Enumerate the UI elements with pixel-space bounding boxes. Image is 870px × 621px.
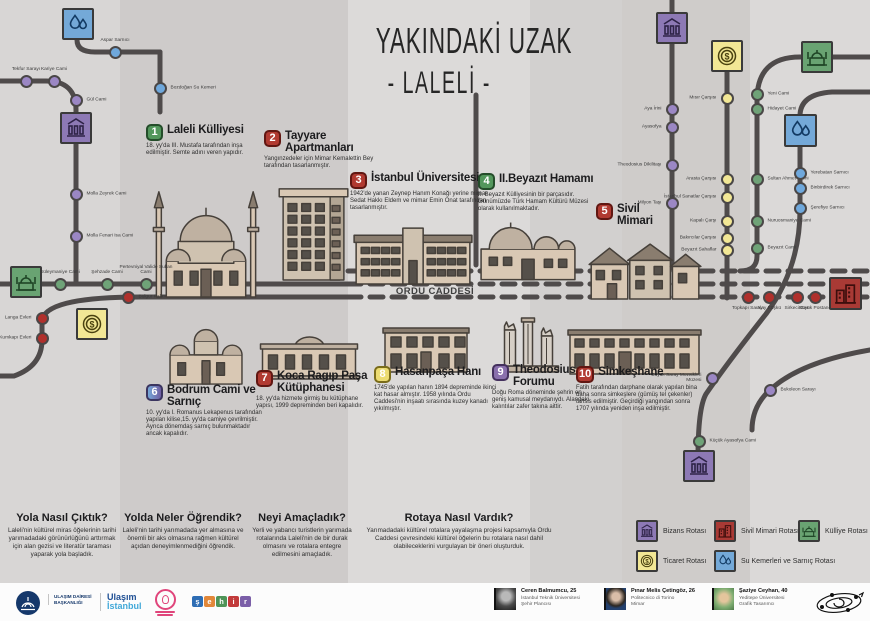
road-ordu-caddesi: ORDU CADDESİ — [366, 286, 504, 297]
person-name: Ceren Balmumcu, 25 — [521, 588, 580, 594]
legend-item-kulliye: Külliye Rotası — [798, 520, 868, 542]
person-name: Şaziye Ceyhan, 40 — [739, 588, 788, 594]
map-station: Yeni Cami — [751, 88, 764, 101]
illustration-church — [160, 316, 252, 386]
station-dot — [791, 291, 804, 304]
legend-label: Bizans Rotası — [663, 528, 706, 535]
map-station: Beyazıt Sahaflar — [721, 244, 734, 257]
poi-number-badge: 10 — [576, 366, 594, 383]
station-dot — [794, 202, 807, 215]
station-dot — [751, 173, 764, 186]
ibb-emblem-icon — [16, 591, 40, 615]
station-label: Bakırcılar Çarşısı — [661, 235, 717, 240]
illustration-hamam — [477, 210, 579, 282]
question-col-4: Rotaya Nasıl Vardık? Yarımadadaki kültür… — [360, 512, 558, 551]
station-label: Binbirdirek Sarnıcı — [811, 185, 867, 190]
map-station: Sultan Ahmet Cami — [751, 173, 764, 186]
poi-number-badge: 9 — [492, 364, 509, 381]
station-label: Süleymaniye Cami — [33, 270, 87, 275]
station-label: Aya İrini — [606, 106, 662, 111]
credit-person-3: Şaziye Ceyhan, 40 Yeditepe Üniversitesi … — [712, 588, 788, 610]
station-dot — [751, 242, 764, 255]
legend-item-water: Su Kemerleri ve Sarnıç Rotası — [714, 550, 835, 572]
station-dot — [809, 291, 822, 304]
station-dot — [751, 215, 764, 228]
person-photo — [604, 588, 626, 610]
question-col-2: Yolda Neler Öğrendik? Laleli'nin tarihi … — [122, 512, 244, 551]
person-photo — [712, 588, 734, 610]
poi-title: Sivil Mimari — [617, 203, 666, 227]
station-dot — [742, 291, 755, 304]
station-dot — [794, 167, 807, 180]
poi-description: Fatih tarafından darphane olarak yapılan… — [576, 385, 704, 413]
station-label: Langa Evleri — [0, 315, 32, 320]
pink-logo-icon — [155, 589, 176, 610]
poi-description: 18. yy'da III. Mustafa tarafından inşa e… — [146, 143, 264, 157]
bizans-route-icon — [60, 112, 92, 144]
person-school: Yeditepe Üniversitesi — [739, 596, 788, 601]
map-station: İstanbul Sanatlar Çarşısı — [721, 191, 734, 204]
station-label: Kapalı Çarşı — [661, 218, 717, 223]
station-label: Bozdoğan Su Kemeri — [171, 85, 227, 90]
wordmark-letter-tile: e — [204, 596, 215, 607]
map-station: Sirkeci Garı — [791, 291, 804, 304]
map-station: Mısır Çarşısı — [721, 92, 734, 105]
map-station: Molla Fenari Isa Cami — [70, 230, 83, 243]
map-station: Nuruosmaniye Cami — [751, 215, 764, 228]
ulasim-istanbul-logo: Ulaşım İstanbul — [100, 593, 142, 611]
person-school: Politecnico di Torino — [631, 596, 695, 601]
poi-description: 1942'de yanan Zeynep Hanım Konağı yerine… — [350, 191, 492, 212]
wordmark-letter-tile: i — [228, 596, 239, 607]
station-dot — [751, 103, 764, 116]
illustration-mosque — [146, 166, 266, 300]
ticaret-route-icon: $ — [636, 550, 658, 572]
poi-description: Yangınzedeler için Mimar Kemalettin Bey … — [264, 156, 394, 170]
map-station: Kariye Cami — [48, 75, 61, 88]
bizans-route-icon — [636, 520, 658, 542]
credit-person-2: Pınar Melis Çetingöz, 26 Politecnico di … — [604, 588, 695, 610]
station-dot — [36, 312, 49, 325]
credit-person-1: Ceren Balmumcu, 25 İstanbul Teknik Ünive… — [494, 588, 580, 610]
pink-logo-text — [155, 611, 176, 616]
station-label: Arasta Çarşısı — [661, 176, 717, 181]
ulasim-dairesi-logo: ULAŞIM DAİRESİ BAŞKANLIĞI — [48, 594, 94, 605]
poi-number-badge: 2 — [264, 130, 281, 147]
map-station: Arasta Çarşısı — [721, 173, 734, 186]
station-dot — [763, 291, 776, 304]
station-label: Hidayet Cami — [768, 106, 824, 111]
map-station: Bulgur Palas — [122, 291, 135, 304]
poi-4: 4 II.Beyazıt HamamıII. Beyazıt Külliyesi… — [478, 173, 606, 213]
poster-title: YAKINDAKİ UZAK - LALELİ - — [348, 26, 530, 98]
map-station: Pertevniyal Valide Sultan Cami — [140, 278, 153, 291]
station-dot — [109, 46, 122, 59]
map-station: Gül Cami — [70, 94, 83, 107]
map-station: Büyük Saray Mozaikleri Müzesi — [706, 372, 719, 385]
question-title: Yolda Neler Öğrendik? — [122, 512, 244, 524]
station-label: Aspar Sarnıcı — [88, 38, 142, 43]
station-label: Yeni Cami — [768, 91, 824, 96]
question-answer: Laleli'nin kültürel miras öğelerinin tar… — [6, 527, 118, 558]
water-route-icon — [784, 114, 817, 147]
station-label: Beyazıt Cami — [768, 245, 824, 250]
poi-title: Koca Ragıp Paşa Kütüphanesi — [277, 370, 368, 394]
svg-text:$: $ — [724, 52, 729, 62]
station-label: Kariye Cami — [27, 67, 81, 72]
map-station: Küçük Ayasofya Cami — [693, 435, 706, 448]
poi-number-badge: 5 — [596, 203, 613, 220]
wordmark-letter-tile: r — [240, 596, 251, 607]
station-dot — [70, 94, 83, 107]
sivil-route-icon — [714, 520, 736, 542]
map-station: Hidayet Cami — [751, 103, 764, 116]
person-role: Grafik Tasarımcı — [739, 602, 788, 607]
station-dot — [764, 384, 777, 397]
map-station: Bozdoğan Su Kemeri — [154, 82, 167, 95]
legend-item-ticaret: $ Ticaret Rotası — [636, 550, 706, 572]
wordmark-letter-tile: h — [216, 596, 227, 607]
map-station: Bukoleon Sarayı — [764, 384, 777, 397]
poi-number-badge: 8 — [374, 366, 391, 383]
question-answer: Yerli ve yabancı turistlerin yarımada ro… — [250, 527, 354, 558]
question-title: Yola Nasıl Çıktık? — [6, 512, 118, 524]
pink-round-logo — [155, 589, 176, 616]
ibb-logo — [16, 591, 40, 615]
poi-title: II.Beyazıt Hamamı — [499, 173, 593, 186]
illustration-houses — [583, 236, 705, 302]
map-station: Theodosius Dikilitaşı — [666, 159, 679, 172]
sivil-route-icon — [829, 277, 862, 310]
station-label: Yerebatan Sarnıcı — [811, 170, 867, 175]
person-photo — [494, 588, 516, 610]
map-station: Langa Evleri — [36, 312, 49, 325]
station-dot — [140, 278, 153, 291]
poi-title: Bodrum Cami ve Sarnıç — [167, 384, 262, 408]
station-label: İstanbul Sanatlar Çarşısı — [661, 194, 717, 199]
station-dot — [706, 372, 719, 385]
legend-label: Su Kemerleri ve Sarnıç Rotası — [741, 558, 835, 565]
station-label: Pertevniyal Valide Sultan Cami — [119, 265, 173, 275]
person-name: Pınar Melis Çetingöz, 26 — [631, 588, 695, 594]
station-dot — [70, 230, 83, 243]
title-line2: - LALELİ - — [387, 65, 490, 101]
map-station: Binbirdirek Sarnıcı — [794, 182, 807, 195]
legend-item-bizans: Bizans Rotası — [636, 520, 706, 542]
map-station: Aya İrini — [666, 103, 679, 116]
station-label: Molla Fenari Isa Cami — [87, 233, 143, 238]
istanbul-label: İstanbul — [107, 602, 142, 611]
title-line1: YAKINDAKİ UZAK — [376, 22, 573, 63]
poi-1: 1 Laleli Külliyesi18. yy'da III. Mustafa… — [146, 124, 264, 157]
person-role: Şehir Plancısı — [521, 602, 580, 607]
map-station: Alay Köşkü — [763, 291, 776, 304]
poi-number-badge: 7 — [256, 370, 273, 387]
station-dot — [721, 173, 734, 186]
station-dot — [693, 435, 706, 448]
person-role: Mimar — [631, 602, 695, 607]
poi-title: İstanbul Üniversitesi — [371, 172, 479, 185]
station-label: Bulgur Palas — [139, 294, 195, 299]
map-station: Ayasofya — [666, 121, 679, 134]
question-answer: Yarımadadaki kültürel rotalara yayalaşma… — [360, 527, 558, 551]
station-dot — [54, 278, 67, 291]
station-dot — [794, 182, 807, 195]
poi-number-badge: 3 — [350, 172, 367, 189]
map-station: Süleymaniye Cami — [54, 278, 67, 291]
station-label: Nuruosmaniye Cami — [768, 218, 824, 223]
poi-10: 10 SimkeşhaneFatih tarafından darphane o… — [576, 366, 704, 413]
map-station: Şerefiye Sarnıcı — [794, 202, 807, 215]
map-station: Topkapı Sarayı — [742, 291, 755, 304]
poi-8: 8 Hasanpaşa Hanı1745'de yapılan hanın 18… — [374, 366, 502, 413]
map-station: Kapalı Çarşı — [721, 215, 734, 228]
map-station: Yerebatan Sarnıcı — [794, 167, 807, 180]
water-route-icon — [714, 550, 736, 572]
station-dot — [721, 92, 734, 105]
station-dot — [20, 75, 33, 88]
poi-6: 6 Bodrum Cami ve Sarnıç10. yy'da I. Roma… — [146, 384, 262, 438]
bizans-route-icon — [683, 450, 715, 482]
illustration-apartment — [266, 184, 362, 282]
station-dot — [721, 215, 734, 228]
legend-label: Külliye Rotası — [825, 528, 868, 535]
station-label: Gül Cami — [87, 97, 143, 102]
poi-title: Tayyare Apartmanları — [285, 130, 394, 154]
svg-text:$: $ — [89, 320, 94, 330]
legend-label: Ticaret Rotası — [663, 558, 706, 565]
map-station: Tekfur Sarayı — [20, 75, 33, 88]
poi-2: 2 Tayyare ApartmanlarıYangınzedeler için… — [264, 130, 394, 170]
poi-description: 1745'de yapılan hanın 1894 depreminde ik… — [374, 385, 502, 413]
water-route-icon — [62, 8, 94, 40]
ticaret-route-icon: $ — [711, 40, 743, 72]
person-school: İstanbul Teknik Üniversitesi — [521, 596, 580, 601]
station-dot — [666, 159, 679, 172]
question-col-3: Neyi Amaçladık? Yerli ve yabancı turistl… — [250, 512, 354, 558]
station-dot — [70, 188, 83, 201]
map-station: Şehzade Cami — [101, 278, 114, 291]
station-label: Küçük Ayasofya Cami — [710, 438, 766, 443]
bizans-route-icon — [656, 12, 688, 44]
station-label: Molla Zeyrek Cami — [87, 191, 143, 196]
question-title: Rotaya Nasıl Vardık? — [360, 512, 558, 524]
station-label: Mısır Çarşısı — [661, 95, 717, 100]
orbit-doodle-icon — [812, 587, 866, 619]
poi-description: 18. yy'da hizmete girmiş bu kütüphane ya… — [256, 396, 368, 410]
poi-3: 3 İstanbul Üniversitesi1942'de yanan Zey… — [350, 172, 492, 212]
map-station: Molla Zeyrek Cami — [70, 188, 83, 201]
map-station: Büyük Postane — [809, 291, 822, 304]
station-dot — [101, 278, 114, 291]
poi-7: 7 Koca Ragıp Paşa Kütüphanesi18. yy'da h… — [256, 370, 368, 410]
poi-5: 5 Sivil Mimari — [596, 203, 666, 227]
poi-title: Simkeşhane — [598, 366, 663, 379]
poi-number-badge: 6 — [146, 384, 163, 401]
poi-number-badge: 1 — [146, 124, 163, 141]
station-dot — [721, 244, 734, 257]
question-title: Neyi Amaçladık? — [250, 512, 354, 524]
station-dot — [48, 75, 61, 88]
poi-title: Laleli Külliyesi — [167, 124, 244, 137]
station-label: Bukoleon Sarayı — [781, 387, 837, 392]
poi-description: 10. yy'da I. Romanus Lekapenus tarafında… — [146, 410, 262, 438]
station-dot — [666, 103, 679, 116]
legend-item-sivil: Sivil Mimari Rotası — [714, 520, 799, 542]
ticaret-route-icon: $ — [76, 308, 108, 340]
station-label: Ayasofya — [606, 124, 662, 129]
sehir-wordmark-logo: şehir — [192, 596, 251, 607]
station-label: Şerefiye Sarnıcı — [811, 205, 867, 210]
poi-description: II. Beyazıt Külliyesinin bir parçasıdır.… — [478, 192, 606, 213]
map-station: Aspar Sarnıcı — [109, 46, 122, 59]
poi-title: Hasanpaşa Hanı — [395, 366, 481, 379]
station-label: Kumkapı Evleri — [0, 335, 32, 340]
ulasim-dairesi-label: ULAŞIM DAİRESİ BAŞKANLIĞI — [48, 594, 94, 605]
map-station: Kumkapı Evleri — [36, 332, 49, 345]
station-dot — [36, 332, 49, 345]
wordmark-letter-tile: ş — [192, 596, 203, 607]
station-dot — [721, 191, 734, 204]
illustration-university — [352, 220, 474, 286]
kulliye-route-icon — [798, 520, 820, 542]
legend-label: Sivil Mimari Rotası — [741, 528, 799, 535]
kulliye-route-icon — [801, 41, 833, 73]
station-label: Beyazıt Sahaflar — [661, 247, 717, 252]
station-dot — [751, 88, 764, 101]
station-dot — [666, 121, 679, 134]
map-station: Beyazıt Cami — [751, 242, 764, 255]
sehir-wordmark-tiles: şehir — [192, 596, 251, 607]
infographic-poster: YAKINDAKİ UZAK - LALELİ - MESE ODOS DIVA… — [0, 0, 870, 621]
question-col-1: Yola Nasıl Çıktık? Laleli'nin kültürel m… — [6, 512, 118, 558]
station-label: Theodosius Dikilitaşı — [606, 162, 662, 167]
question-answer: Laleli'nin tarihi yarımadada yer almasın… — [122, 527, 244, 551]
station-dot — [154, 82, 167, 95]
station-label: Büyük Postane — [797, 306, 833, 311]
poi-number-badge: 4 — [478, 173, 495, 190]
station-dot — [122, 291, 135, 304]
